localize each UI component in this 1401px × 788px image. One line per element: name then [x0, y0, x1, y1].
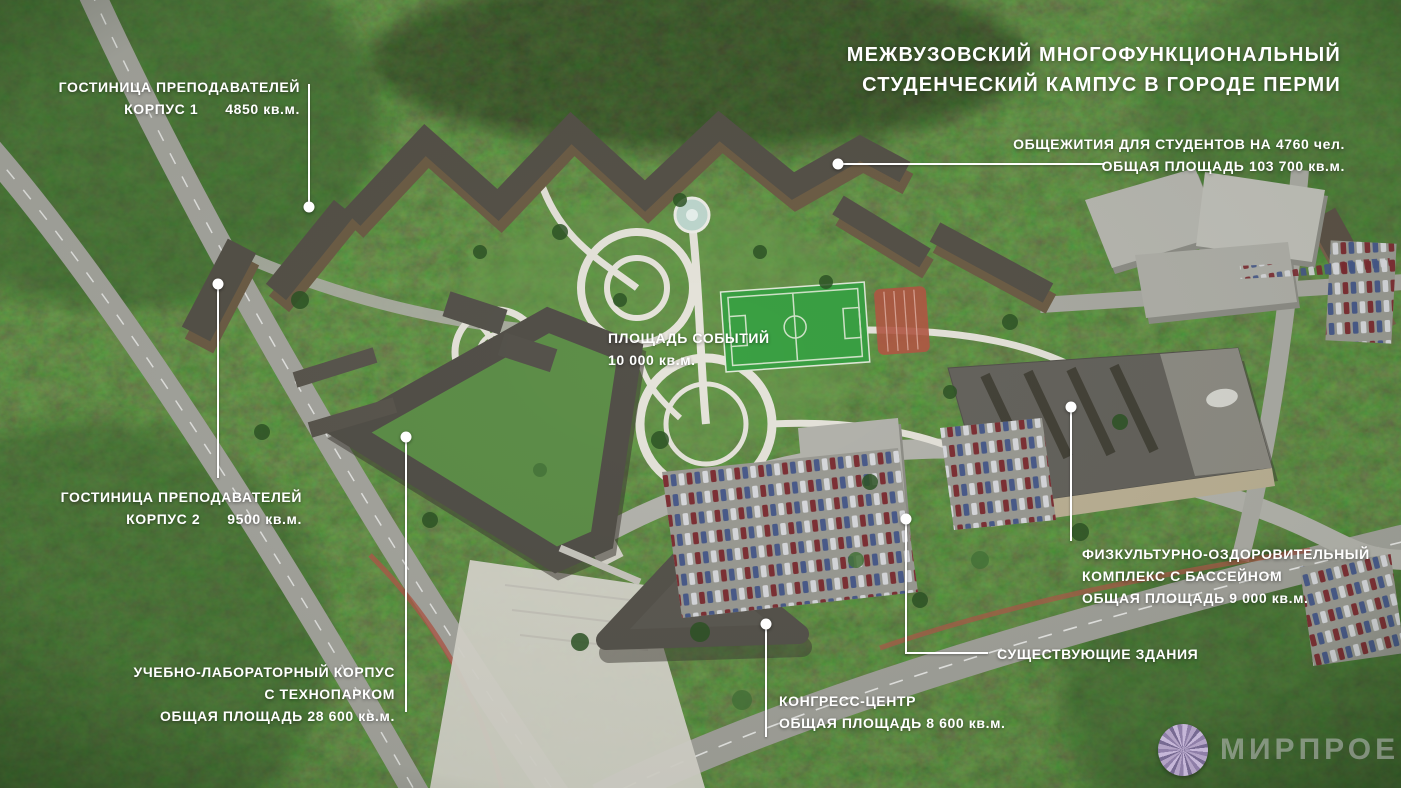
label-line: ОБЩАЯ ПЛОЩАДЬ 8 600 кв.м. — [779, 712, 1006, 734]
label-line: ФИЗКУЛЬТУРНО-ОЗДОРОВИТЕЛЬНЫЙ — [1082, 543, 1370, 565]
label-line: ОБЩАЯ ПЛОЩАДЬ 9 000 кв.м. — [1082, 587, 1370, 609]
label-line: КОРПУС 1 4850 кв.м. — [59, 98, 300, 120]
masterplan-slide: МЕЖВУЗОВСКИЙ МНОГОФУНКЦИОНАЛЬНЫЙ СТУДЕНЧ… — [0, 0, 1401, 788]
label-sports: ФИЗКУЛЬТУРНО-ОЗДОРОВИТЕЛЬНЫЙ КОМПЛЕКС С … — [1082, 543, 1370, 609]
label-existing: СУЩЕСТВУЮЩИЕ ЗДАНИЯ — [997, 643, 1198, 665]
marker-dorms — [833, 159, 844, 170]
label-congress: КОНГРЕСС-ЦЕНТР ОБЩАЯ ПЛОЩАДЬ 8 600 кв.м. — [779, 690, 1006, 734]
mirproekt-logo-text: МИРПРОЕКТ — [1220, 733, 1401, 767]
marker-existing — [901, 514, 912, 525]
label-line: ГОСТИНИЦА ПРЕПОДАВАТЕЛЕЙ — [59, 76, 300, 98]
label-line: ОБЩАЯ ПЛОЩАДЬ 103 700 кв.м. — [1013, 155, 1345, 177]
label-events-square: ПЛОЩАДЬ СОБЫТИЙ 10 000 кв.м. — [608, 327, 770, 371]
label-line: ПЛОЩАДЬ СОБЫТИЙ — [608, 327, 770, 349]
leader-hotel-1 — [308, 84, 310, 206]
mirproekt-pinwheel-icon — [1158, 724, 1208, 776]
slide-title-line: МЕЖВУЗОВСКИЙ МНОГОФУНКЦИОНАЛЬНЫЙ — [847, 40, 1341, 70]
label-line: ГОСТИНИЦА ПРЕПОДАВАТЕЛЕЙ — [61, 486, 302, 508]
label-line: СУЩЕСТВУЮЩИЕ ЗДАНИЯ — [997, 643, 1198, 665]
marker-sports — [1066, 402, 1077, 413]
leader-lab — [405, 441, 407, 712]
leader-congress — [765, 628, 767, 737]
label-line: УЧЕБНО-ЛАБОРАТОРНЫЙ КОРПУС — [134, 661, 395, 683]
label-line: ОБЩАЯ ПЛОЩАДЬ 28 600 кв.м. — [134, 705, 395, 727]
label-line: КОРПУС 2 9500 кв.м. — [61, 508, 302, 530]
marker-lab — [401, 432, 412, 443]
marker-congress — [761, 619, 772, 630]
label-line: КОНГРЕСС-ЦЕНТР — [779, 690, 1006, 712]
logo: МИРПРОЕКТ — [1158, 724, 1401, 776]
label-line: ОБЩЕЖИТИЯ ДЛЯ СТУДЕНТОВ НА 4760 чел. — [1013, 133, 1345, 155]
label-hotel-2: ГОСТИНИЦА ПРЕПОДАВАТЕЛЕЙ КОРПУС 2 9500 к… — [61, 486, 302, 530]
label-hotel-1: ГОСТИНИЦА ПРЕПОДАВАТЕЛЕЙ КОРПУС 1 4850 к… — [59, 76, 300, 120]
label-line: КОМПЛЕКС С БАССЕЙНОМ — [1082, 565, 1370, 587]
leader-hotel-2 — [217, 288, 219, 478]
label-lab: УЧЕБНО-ЛАБОРАТОРНЫЙ КОРПУС С ТЕХНОПАРКОМ… — [134, 661, 395, 727]
slide-title-line: СТУДЕНЧЕСКИЙ КАМПУС В ГОРОДЕ ПЕРМИ — [847, 70, 1341, 100]
leader-sports — [1070, 411, 1072, 541]
marker-hotel-1 — [304, 202, 315, 213]
leader-existing-v — [905, 523, 907, 654]
label-dorms: ОБЩЕЖИТИЯ ДЛЯ СТУДЕНТОВ НА 4760 чел. ОБЩ… — [1013, 133, 1345, 177]
marker-hotel-2 — [213, 279, 224, 290]
leader-existing-h — [905, 652, 988, 654]
label-line: С ТЕХНОПАРКОМ — [134, 683, 395, 705]
label-line: 10 000 кв.м. — [608, 349, 770, 371]
slide-title: МЕЖВУЗОВСКИЙ МНОГОФУНКЦИОНАЛЬНЫЙ СТУДЕНЧ… — [847, 40, 1341, 100]
